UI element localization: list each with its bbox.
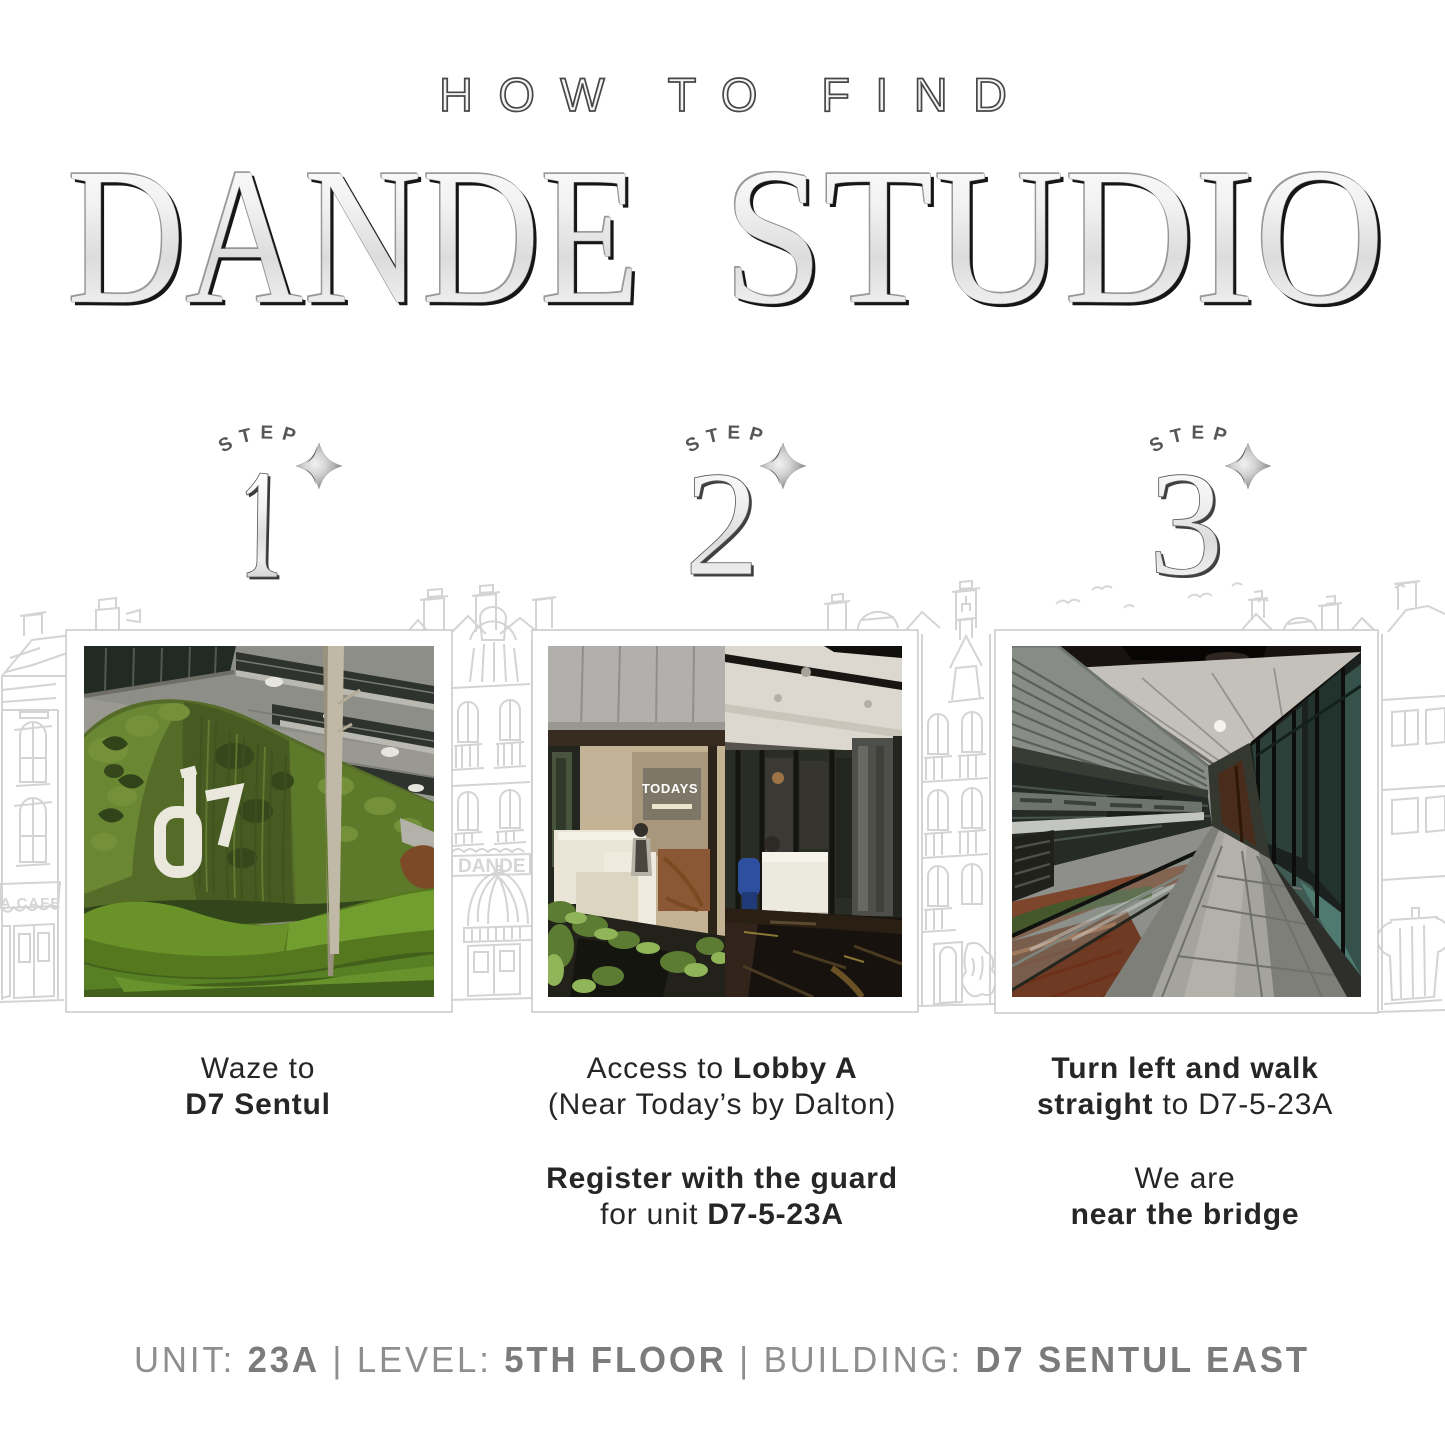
svg-text:(Near Today’s by Dalton): (Near Today’s by Dalton) [548, 1088, 896, 1121]
svg-text:for unit D7-5-23A: for unit D7-5-23A [600, 1198, 844, 1231]
svg-text:UNIT: 23A | LEVEL: 5TH FLOOR |: UNIT: 23A | LEVEL: 5TH FLOOR | BUILDING:… [134, 1339, 1310, 1380]
svg-text:HOW TO FIND: HOW TO FIND [439, 68, 1007, 121]
svg-text:STUDIO: STUDIO [723, 128, 1385, 345]
svg-text:2: 2 [685, 441, 760, 607]
svg-text:Waze to: Waze to [201, 1052, 316, 1085]
svg-text:A CAFE: A CAFE [0, 895, 61, 912]
svg-text:Access to Lobby A: Access to Lobby A [587, 1052, 858, 1085]
svg-text:D7 Sentul: D7 Sentul [185, 1088, 331, 1121]
svg-text:Register with the guard: Register with the guard [546, 1162, 898, 1195]
svg-text:3: 3 [1149, 441, 1224, 607]
svg-text:STEP: STEP [215, 423, 305, 458]
svg-text:near the bridge: near the bridge [1071, 1198, 1300, 1231]
svg-text:TODAYS: TODAYS [642, 781, 698, 796]
svg-text:Turn left and walk: Turn left and walk [1051, 1052, 1318, 1085]
svg-text:We are: We are [1135, 1162, 1236, 1195]
svg-text:straight to D7-5-23A: straight to D7-5-23A [1037, 1088, 1333, 1121]
svg-text:DANDE: DANDE [67, 128, 640, 345]
